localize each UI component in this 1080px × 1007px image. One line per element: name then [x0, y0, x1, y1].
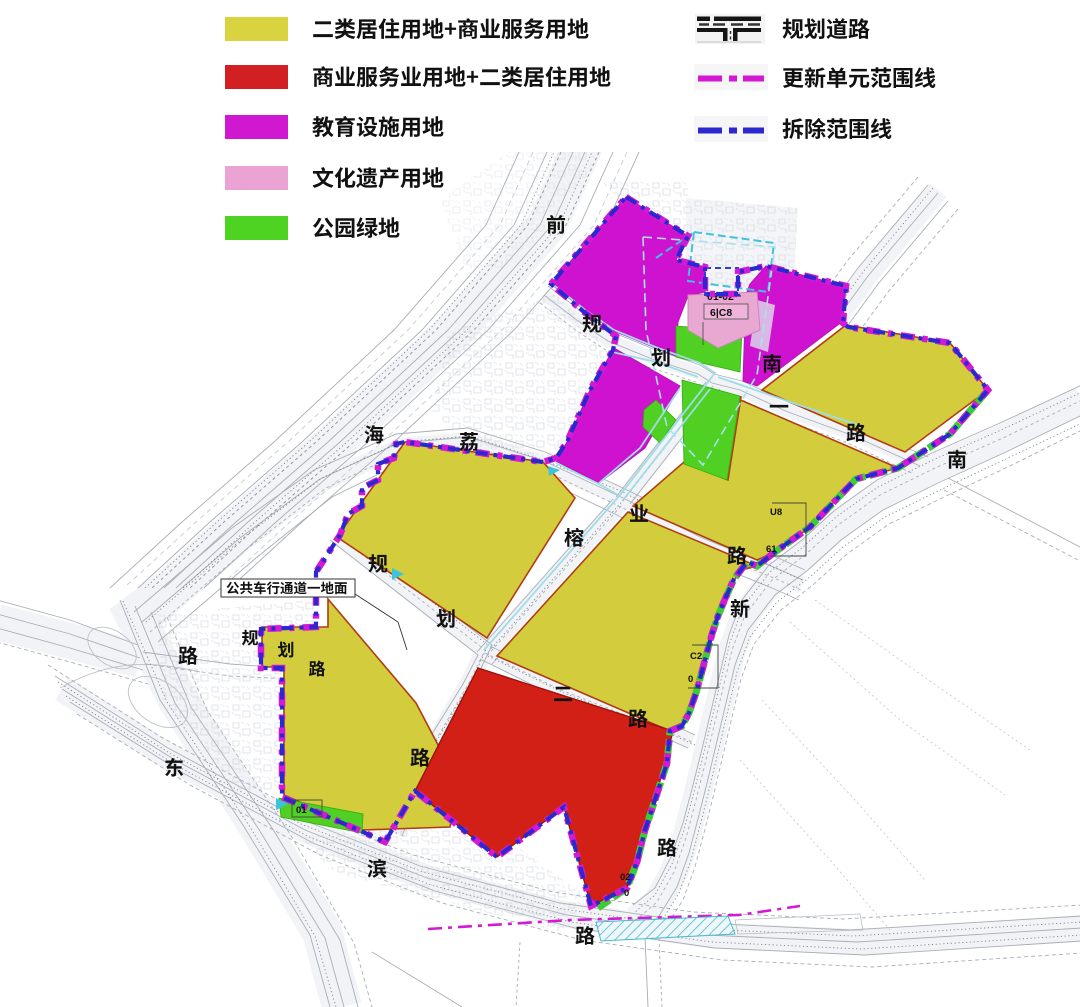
svg-text:0: 0: [624, 888, 629, 899]
svg-text:01: 01: [296, 805, 307, 816]
svg-text:61: 61: [766, 544, 777, 555]
svg-text:0: 0: [688, 674, 693, 685]
svg-text:C2: C2: [690, 651, 702, 662]
svg-text:U8: U8: [770, 507, 782, 518]
svg-text:02: 02: [620, 872, 631, 883]
svg-text:6|C8: 6|C8: [710, 307, 732, 319]
